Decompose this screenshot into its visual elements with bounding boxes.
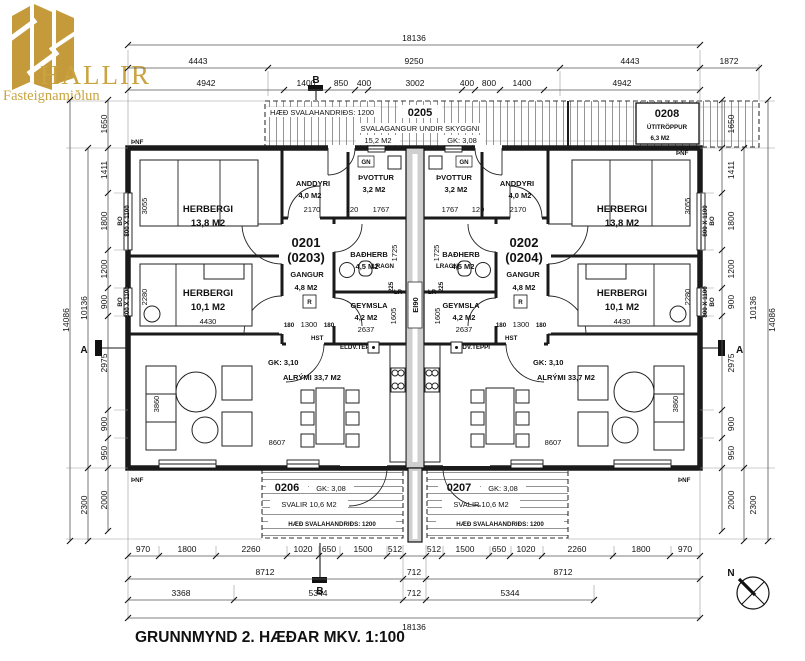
chair: [301, 434, 314, 447]
r-label: R: [307, 299, 312, 306]
dim-label: 1500: [354, 544, 373, 554]
chair: [346, 390, 359, 403]
interior-dim: 1725: [432, 245, 441, 262]
window-tag: BO: [117, 216, 124, 225]
drawing-title: GRUNNMYND 2. HÆÐAR MKV. 1:100: [135, 629, 405, 646]
north-arrow: [739, 579, 755, 595]
unit-number: 0202: [510, 235, 539, 250]
interior-dim: 120: [472, 205, 485, 214]
balcony-left-number: 0206: [275, 482, 299, 494]
dim-label: 18136: [402, 622, 426, 632]
room-area: 4,2 M2: [355, 313, 378, 322]
round-table: [614, 372, 654, 412]
kitchen-counter: [390, 345, 406, 462]
room-label: ALRÝMI 33,7 M2: [283, 373, 341, 382]
balcony-right-label: SVALIR 10,6 M2: [453, 500, 508, 509]
room-name: ÞVOTTUR: [358, 173, 394, 182]
interior-dim: 4430: [200, 317, 217, 326]
sink: [476, 263, 491, 278]
interior-dim: 2170: [510, 205, 527, 214]
dim-label: 900: [99, 417, 109, 431]
window-tag: 800 X 1100: [702, 205, 709, 237]
round-table: [176, 372, 216, 412]
walkway-name: SVALAGANGUR UNDIR SKYGGNI: [361, 124, 480, 133]
round-table: [612, 417, 638, 443]
interior-dim: 1605: [389, 308, 398, 325]
round-table: [192, 417, 218, 443]
gn-label: GN: [361, 159, 371, 166]
armchair: [222, 412, 252, 446]
room-name: HERBERGI: [183, 204, 233, 215]
balcony-left-label: SVALIR 10,6 M2: [281, 500, 336, 509]
chair: [471, 412, 484, 425]
pnf-label: ÞNF: [131, 139, 144, 146]
dim-label: 2260: [242, 544, 261, 554]
dim-label: 1411: [99, 161, 109, 180]
compass: N: [727, 568, 769, 609]
window-tag: 800 X 1100: [124, 205, 131, 237]
bed: [140, 160, 258, 226]
interior-dim: 1767: [373, 205, 390, 214]
dim-label: 4942: [613, 78, 632, 88]
interior-dim: 3055: [140, 198, 149, 215]
hst-label: HST: [311, 335, 324, 342]
chair: [516, 434, 529, 447]
dim-label: 14086: [61, 308, 71, 332]
room-area: 10,1 M2: [605, 302, 639, 313]
interior-dim: 3055: [683, 198, 692, 215]
dim-label: 1411: [726, 161, 736, 180]
room-area: 3,2 M2: [445, 185, 468, 194]
balcony-bottom-left: 0206 GK: 3,08 SVALIR 10,6 M2 HÆÐ SVALAHA…: [262, 468, 403, 538]
dim-label: 9250: [405, 56, 424, 66]
interior-dim: 2637: [358, 325, 375, 334]
room-name: ANDDYRI: [500, 179, 534, 188]
chair: [670, 306, 686, 322]
interior-dim: 1725: [390, 245, 399, 262]
dim-label: 4942: [197, 78, 216, 88]
dim-label: 800: [482, 78, 496, 88]
walkway-number: 0205: [408, 107, 432, 119]
interior-dim: 1300: [513, 320, 530, 329]
dim-label: 650: [322, 544, 336, 554]
room-name: GANGUR: [290, 270, 324, 279]
dim-label: 18136: [402, 33, 426, 43]
window: [511, 460, 543, 468]
logo-tagline: Fasteignamiðlun: [3, 88, 100, 104]
dim-label: 2975: [726, 353, 736, 372]
dim-label: 1500: [456, 544, 475, 554]
dim-label: 970: [678, 544, 692, 554]
dim-label: 1650: [99, 114, 109, 133]
interior-dim: 2280: [140, 289, 149, 306]
window-tag: 800 X 1100: [124, 286, 131, 318]
balcony-left-railing: HÆÐ SVALAHANDRIÐS: 1200: [288, 521, 376, 528]
window-tag: BO: [709, 297, 716, 306]
dim-label: 2000: [99, 490, 109, 509]
room-name: ÞVOTTUR: [436, 173, 472, 182]
room-area: 4,2 M2: [453, 313, 476, 322]
dim-label: 950: [726, 446, 736, 460]
stairs-area: 6,3 M2: [651, 135, 670, 142]
dim-label: 1020: [517, 544, 536, 554]
armchair: [578, 366, 608, 400]
desk: [204, 264, 244, 279]
section-a-marker: A: [736, 345, 743, 356]
armchair: [222, 366, 252, 400]
washing-machine: [429, 156, 442, 169]
window-tag: 800 X 1100: [702, 286, 709, 318]
room-area: 10,1 M2: [191, 302, 225, 313]
interior-dim: 2280: [683, 289, 692, 306]
chair: [471, 434, 484, 447]
dim-label: 950: [99, 446, 109, 460]
washing-machine: [388, 156, 401, 169]
room-name: GANGUR: [506, 270, 540, 279]
r-label: R: [518, 299, 523, 306]
walkway-railing-label: HÆÐ SVALAHANDRIÐS: 1200: [270, 108, 374, 117]
lragn-label: LRAGN: [372, 263, 395, 270]
dim-label: 2260: [568, 544, 587, 554]
interior-dim: 180: [284, 322, 295, 329]
room-name: GEYMSLA: [350, 301, 388, 310]
logo-name: HALLIR: [40, 60, 151, 90]
room-name: HERBERGI: [183, 288, 233, 299]
interior-dim: 1605: [433, 308, 442, 325]
dim-label: 2000: [726, 490, 736, 509]
interior-dim: 120: [346, 205, 359, 214]
desk: [586, 264, 626, 279]
floor-plan-page: HALLIR Fasteignamiðlun HÆÐ SVALAHANDRIÐS…: [0, 0, 805, 661]
dim-label: 1200: [99, 259, 109, 278]
chair: [346, 434, 359, 447]
dim-label: 900: [726, 417, 736, 431]
dim-label: 10136: [79, 296, 89, 320]
dim-label: 10136: [748, 296, 758, 320]
dim-label: 4443: [189, 56, 208, 66]
dim-label: 8712: [554, 567, 573, 577]
room-area: 3,2 M2: [363, 185, 386, 194]
dim-label: 512: [427, 544, 441, 554]
kitchen-counter: [424, 345, 440, 462]
dim-label: 14086: [767, 308, 777, 332]
room-name: HERBERGI: [597, 288, 647, 299]
north-label: N: [727, 568, 734, 579]
room-name: BAÐHERB: [350, 250, 388, 259]
dim-label: 2975: [99, 353, 109, 372]
interior-dim: 225: [388, 281, 395, 292]
pnf-label: ÞNF: [131, 477, 144, 484]
dim-label: 1200: [726, 259, 736, 278]
chair: [301, 390, 314, 403]
dim-label: 512: [388, 544, 402, 554]
interior-dim: 180: [536, 322, 547, 329]
dim-label: 712: [407, 588, 421, 598]
room-area: 4,0 M2: [299, 191, 322, 200]
walkway-area: 15,2 M2: [364, 136, 391, 145]
unit-number: 0201: [292, 235, 321, 250]
dim-label: 712: [407, 567, 421, 577]
dim-label: 1872: [720, 56, 739, 66]
chair: [516, 390, 529, 403]
room-area: 4,8 M2: [513, 283, 536, 292]
unit-alt-number: (0204): [505, 250, 543, 265]
pnf-label: ÞNF: [678, 477, 691, 484]
section-a-marker: A: [80, 345, 87, 356]
stairs-utitroppur: 0208 ÚTITRÖPPUR 6,3 M2: [636, 103, 699, 144]
gn-label: GN: [459, 159, 469, 166]
room-name: GEYMSLA: [442, 301, 480, 310]
lragn-label: LRAGN: [436, 263, 459, 270]
window: [159, 460, 216, 468]
dim-label: 8712: [256, 567, 275, 577]
pnf-label: ÞNF: [676, 150, 689, 157]
dim-label: 850: [334, 78, 348, 88]
dim-label: 900: [726, 295, 736, 309]
dim-label: 1400: [513, 78, 532, 88]
window-tag: BO: [117, 297, 124, 306]
balcony-bottom-right: 0207 GK: 3,08 SVALIR 10,6 M2 HÆÐ SVALAHA…: [427, 468, 568, 538]
sink: [340, 263, 355, 278]
chair: [144, 306, 160, 322]
armchair: [578, 412, 608, 446]
walkway-gk: GK: 3,08: [447, 136, 477, 145]
dining-table: [316, 388, 344, 444]
dim-label: 1020: [294, 544, 313, 554]
dim-label: 5344: [501, 588, 520, 598]
balcony-right-number: 0207: [447, 482, 471, 494]
window: [445, 146, 462, 152]
dim-label: 1400: [297, 78, 316, 88]
dim-label: 650: [492, 544, 506, 554]
dim-label: 1800: [99, 211, 109, 230]
interior-dim: 3860: [671, 396, 680, 413]
room-label: ALRÝMI 33,7 M2: [537, 373, 595, 382]
dim-label: 3368: [172, 588, 191, 598]
dim-label: 4443: [621, 56, 640, 66]
dim-label: 1800: [178, 544, 197, 554]
chair: [471, 390, 484, 403]
dim-label: 2300: [79, 495, 89, 514]
room-name: BAÐHERB: [442, 250, 480, 259]
balcony-left-gk: GK: 3,08: [316, 484, 346, 493]
interior-dim: 180: [324, 322, 335, 329]
dining-table: [486, 388, 514, 444]
room-gk: GK: 3,10: [268, 358, 298, 367]
room-name: HERBERGI: [597, 204, 647, 215]
dim-label: 1800: [632, 544, 651, 554]
room-gk: GK: 3,10: [533, 358, 563, 367]
dim-label: 1800: [726, 211, 736, 230]
sofa: [146, 366, 176, 450]
lr-label: LR: [394, 289, 403, 296]
chair: [516, 412, 529, 425]
chair: [346, 412, 359, 425]
dim-label: 5344: [309, 588, 328, 598]
chair: [301, 412, 314, 425]
lr-label: LR: [428, 289, 437, 296]
dim-label: 970: [136, 544, 150, 554]
interior-dim: 3860: [152, 396, 161, 413]
interior-dim: 2170: [304, 205, 321, 214]
stairs-number: 0208: [655, 108, 679, 120]
dim-label: 400: [357, 78, 371, 88]
window: [287, 460, 319, 468]
interior-dim: 1300: [301, 320, 318, 329]
interior-dim: 180: [496, 322, 507, 329]
dim-label: 1650: [726, 114, 736, 133]
window-tag: BO: [709, 216, 716, 225]
interior-dim: 2637: [456, 325, 473, 334]
interior-dim: 4430: [614, 317, 631, 326]
interior-dim: 1767: [442, 205, 459, 214]
bed: [572, 160, 690, 226]
interior-dim: 8607: [269, 438, 286, 447]
window: [614, 460, 671, 468]
room-name: ANDDYRI: [296, 179, 330, 188]
room-area: 4,8 M2: [295, 283, 318, 292]
window: [368, 146, 385, 152]
room-area: 13,8 M2: [191, 218, 225, 229]
balcony-right-gk: GK: 3,08: [488, 484, 518, 493]
unit-alt-number: (0203): [287, 250, 325, 265]
balcony-right-railing: HÆÐ SVALAHANDRIÐS: 1200: [456, 521, 544, 528]
interior-dim: 8607: [545, 438, 562, 447]
fire-rating-label: EI90: [411, 297, 420, 312]
dim-label: 400: [460, 78, 474, 88]
dim-label: 2300: [748, 495, 758, 514]
stairs-name: ÚTITRÖPPUR: [647, 124, 688, 131]
hst-label: HST: [505, 335, 518, 342]
floor-plan-drawing: HALLIR Fasteignamiðlun HÆÐ SVALAHANDRIÐS…: [0, 0, 805, 661]
interior-dim: 225: [438, 281, 445, 292]
room-area: 13,8 M2: [605, 218, 639, 229]
dim-label: 900: [99, 295, 109, 309]
room-area: 4,0 M2: [509, 191, 532, 200]
dim-label: 3002: [406, 78, 425, 88]
